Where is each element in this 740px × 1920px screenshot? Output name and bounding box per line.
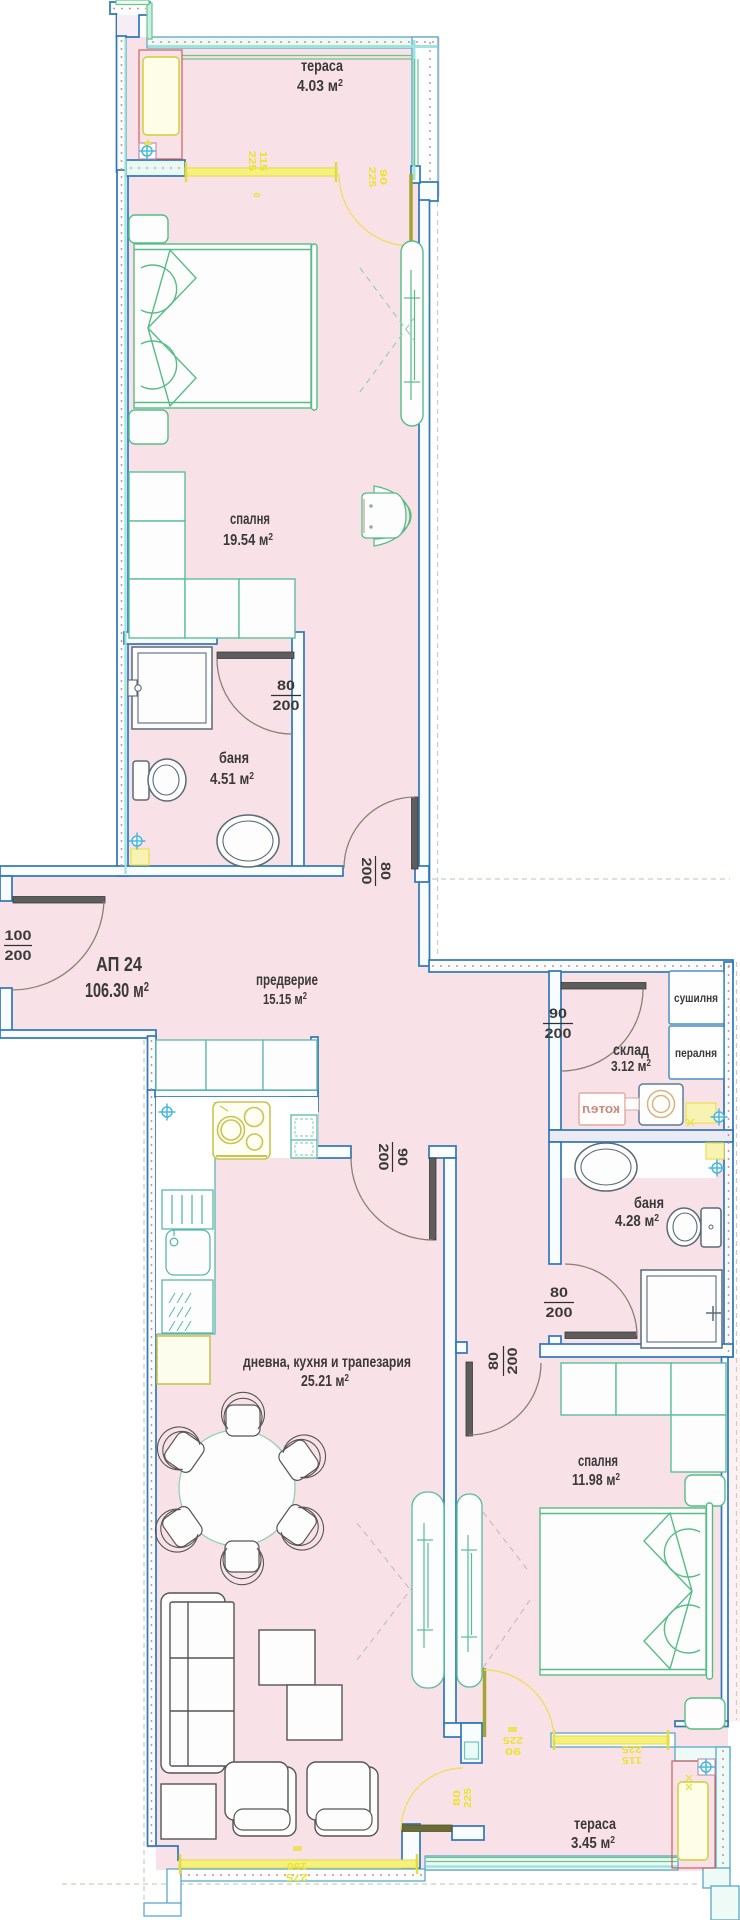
svg-text:баня: баня: [634, 1195, 664, 1212]
svg-text:90: 90: [549, 1005, 567, 1021]
svg-text:предверие: предверие: [256, 972, 318, 989]
svg-text:100: 100: [5, 927, 32, 943]
svg-text:4.28 м2: 4.28 м2: [615, 1213, 659, 1230]
svg-text:АП 24: АП 24: [96, 954, 143, 976]
svg-text:200: 200: [359, 858, 375, 885]
svg-text:пералня: пералня: [675, 1046, 717, 1060]
svg-text:200: 200: [5, 947, 32, 963]
svg-text:80: 80: [277, 677, 295, 693]
svg-text:склад: склад: [613, 1042, 649, 1059]
svg-text:тераса: тераса: [301, 58, 343, 75]
svg-text:спалня: спалня: [578, 1453, 618, 1470]
svg-text:0: 0: [252, 192, 262, 197]
svg-text:19.54 м2: 19.54 м2: [223, 532, 273, 549]
svg-text:200: 200: [546, 1304, 573, 1320]
svg-text:80: 80: [485, 1352, 501, 1370]
svg-text:тераса: тераса: [574, 1816, 616, 1833]
svg-text:25.21 м2: 25.21 м2: [301, 1373, 349, 1390]
svg-text:4.51 м2: 4.51 м2: [210, 771, 254, 788]
svg-text:спалня: спалня: [230, 511, 270, 528]
svg-text:сушилня: сушилня: [674, 991, 718, 1005]
svg-text:106.30 м2: 106.30 м2: [85, 979, 149, 1002]
svg-text:4.03 м2: 4.03 м2: [297, 78, 343, 95]
svg-text:3.12 м2: 3.12 м2: [611, 1058, 651, 1075]
svg-text:200: 200: [545, 1025, 572, 1041]
svg-text:225: 225: [622, 1743, 642, 1755]
svg-text:80: 80: [550, 1284, 568, 1300]
svg-text:3.45 м2: 3.45 м2: [571, 1835, 615, 1852]
svg-text:котел: котел: [582, 1102, 620, 1116]
svg-text:225: 225: [246, 151, 258, 171]
svg-text:225: 225: [366, 167, 378, 187]
svg-text:80: 80: [378, 862, 394, 880]
svg-text:200: 200: [504, 1347, 520, 1374]
svg-text:11.98 м2: 11.98 м2: [572, 1472, 620, 1489]
svg-text:200: 200: [376, 1144, 392, 1171]
svg-text:200: 200: [273, 697, 300, 713]
svg-text:баня: баня: [219, 750, 249, 767]
svg-text:150: 150: [287, 1860, 307, 1872]
svg-text:90: 90: [395, 1148, 411, 1166]
svg-text:дневна, кухня и трапезария: дневна, кухня и трапезария: [243, 1354, 411, 1371]
svg-text:225: 225: [503, 1734, 523, 1746]
svg-text:225: 225: [462, 1788, 474, 1808]
svg-text:15.15 м2: 15.15 м2: [263, 991, 307, 1008]
